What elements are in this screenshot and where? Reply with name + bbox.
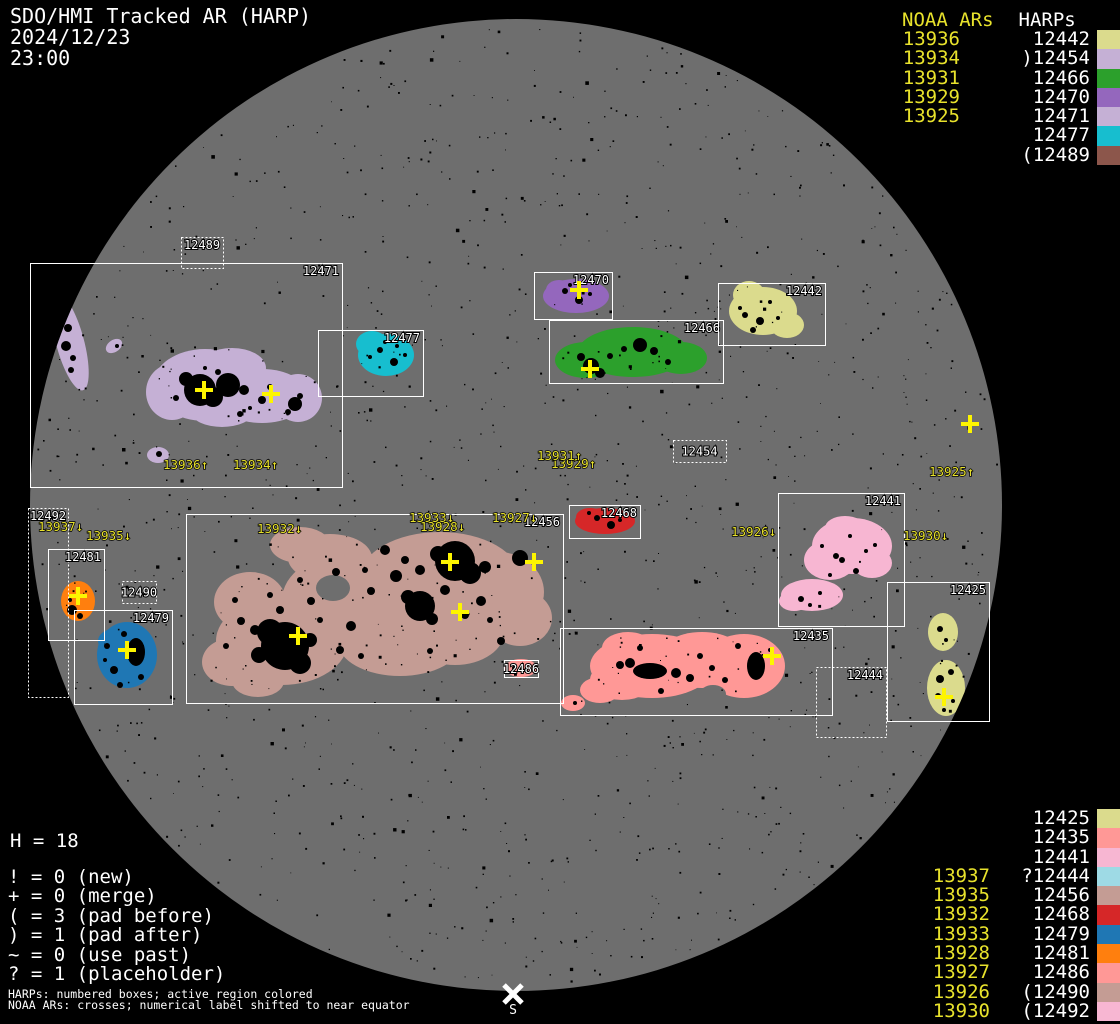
sunspot xyxy=(621,346,627,352)
harp-box-label: 12435 xyxy=(793,629,829,643)
sunspot xyxy=(380,545,390,555)
sunspot xyxy=(257,619,283,645)
sunspot xyxy=(479,561,491,573)
sunspot xyxy=(686,674,694,682)
flag-placeholder: ? = 1 (placeholder) xyxy=(8,965,225,984)
sunspot xyxy=(223,643,229,649)
sunspot xyxy=(828,573,832,577)
sunspot xyxy=(562,288,568,294)
legend-row: 13934)12454 xyxy=(890,49,1120,68)
harp-number: 12441 xyxy=(990,848,1090,867)
title-block: SDO/HMI Tracked AR (HARP)2024/12/2323:00 xyxy=(10,6,311,69)
sunspot xyxy=(616,661,624,669)
harp-number: (12489 xyxy=(960,146,1090,165)
harp-number: (12492 xyxy=(990,1002,1090,1021)
sunspot xyxy=(951,699,955,703)
noaa-ar-number xyxy=(890,848,990,867)
sunspot xyxy=(390,570,402,582)
sunspot xyxy=(430,546,446,562)
flag-legend: ! = 0 (new)+ = 0 (merge)( = 3 (pad befor… xyxy=(8,868,225,984)
sunspot xyxy=(237,617,245,625)
sunspot xyxy=(936,675,944,683)
sunspot xyxy=(64,324,72,332)
sunspot xyxy=(497,637,505,645)
sunspot xyxy=(248,406,252,410)
sunspot xyxy=(944,638,948,642)
sunspot xyxy=(808,603,812,607)
time-text: 23:00 xyxy=(10,48,311,69)
harp-box-label: 12441 xyxy=(865,494,901,508)
color-swatch xyxy=(1097,828,1120,847)
harp-number: 12435 xyxy=(990,828,1090,847)
harp-box-label: 12481 xyxy=(65,550,101,564)
sunspot xyxy=(232,597,238,603)
noaa-ar-number xyxy=(890,126,960,145)
sunspot xyxy=(203,366,207,370)
ar-label: 13926↓ xyxy=(731,524,776,539)
sunspot xyxy=(873,543,877,547)
sunspot xyxy=(750,327,756,333)
legend-row: 1393112466 xyxy=(890,69,1120,88)
sunspot xyxy=(346,621,356,631)
color-swatch xyxy=(1097,848,1120,867)
sunspot xyxy=(573,701,577,705)
sunspot xyxy=(415,565,425,575)
sunspot xyxy=(288,397,302,411)
harp-box-label: 12468 xyxy=(601,506,637,520)
sunspot xyxy=(68,367,74,373)
sunspot xyxy=(110,666,118,674)
sunspot xyxy=(697,653,703,659)
sunspot xyxy=(709,665,715,671)
ar-label: 13930↓ xyxy=(903,528,948,543)
sunspot xyxy=(258,396,266,404)
sunspot xyxy=(671,668,681,678)
legend-noaa-harp-top: NOAA ARsHARPs 139361244213934)1245413931… xyxy=(890,11,1120,165)
harp-box-label: 12471 xyxy=(303,264,339,278)
ar-label: 13932↓ xyxy=(257,521,302,536)
sunspot xyxy=(833,553,839,559)
sunspot xyxy=(156,451,162,457)
legend-row: 12435 xyxy=(890,828,1120,847)
sunspot xyxy=(367,587,375,595)
legend-row: (12489 xyxy=(890,146,1120,165)
legend-row: 13930(12492 xyxy=(890,1002,1120,1021)
sunspot xyxy=(377,347,383,353)
sunspot xyxy=(401,590,415,604)
sunspot xyxy=(297,577,303,583)
sunspot xyxy=(307,597,315,605)
sunspot xyxy=(117,682,123,688)
sunspot xyxy=(864,549,868,553)
color-swatch xyxy=(1097,963,1120,982)
sunspot xyxy=(390,358,398,366)
sunspot xyxy=(587,511,591,515)
noaa-ar-number: 13927 xyxy=(890,963,990,982)
sunspot xyxy=(216,373,240,397)
sunspot xyxy=(250,625,260,635)
color-swatch xyxy=(1097,867,1120,886)
noaa-ar-number: 13931 xyxy=(890,69,960,88)
sunspot xyxy=(607,521,615,529)
ar-label: 13937↓ xyxy=(38,519,83,534)
harp-box-label: 12486 xyxy=(503,662,539,676)
color-swatch xyxy=(1097,925,1120,944)
sunspot xyxy=(607,353,613,359)
legend-row: 1392712486 xyxy=(890,963,1120,982)
sunspot xyxy=(427,648,433,654)
legend-row: 1393212468 xyxy=(890,905,1120,924)
sunspot xyxy=(138,674,144,680)
color-swatch xyxy=(1097,983,1120,1002)
sunspot xyxy=(440,585,450,595)
sunspot xyxy=(476,596,486,606)
sunspot xyxy=(173,395,179,401)
harp-number: 12486 xyxy=(990,963,1090,982)
sunspot xyxy=(942,708,946,712)
ar-label: 13928↓ xyxy=(420,519,465,534)
screenshot-root: { "header": {"title": "SDO/HMI Tracked A… xyxy=(0,0,1120,1024)
sunspot xyxy=(239,385,249,395)
color-swatch xyxy=(1097,69,1120,88)
sunspot xyxy=(776,316,780,320)
legend-row: 12441 xyxy=(890,848,1120,867)
sunspot xyxy=(798,596,804,602)
harp-visualization: 1248912471124771247012466124421245412468… xyxy=(0,0,1120,1024)
date-text: 2024/12/23 xyxy=(10,27,311,48)
ar-label: 13934↑ xyxy=(233,457,278,472)
sunspot xyxy=(179,372,193,386)
sunspot xyxy=(121,631,127,637)
noaa-ar-number: 13925 xyxy=(890,107,960,126)
noaa-ar-number xyxy=(890,146,960,165)
color-swatch xyxy=(1097,146,1120,165)
harp-count-text: H = 18 xyxy=(10,830,79,852)
color-swatch xyxy=(1097,49,1120,68)
sunspot xyxy=(848,534,852,538)
sunspot xyxy=(61,341,71,351)
sunspot xyxy=(251,647,267,663)
sunspot xyxy=(853,568,859,574)
harp-box-label: 12466 xyxy=(684,321,720,335)
sunspot xyxy=(818,591,822,595)
flag-merge: + = 0 (merge) xyxy=(8,887,225,906)
noaa-ar-number: 13930 xyxy=(890,1002,990,1021)
sunspot xyxy=(368,355,372,359)
sunspot xyxy=(577,353,585,361)
noaa-ar-number: 13934 xyxy=(890,49,960,68)
legend-bottom-rows: 12425124351244113937?1244413935124561393… xyxy=(890,809,1120,1021)
harp-box-label: 12489 xyxy=(184,238,220,252)
sunspot xyxy=(115,344,119,348)
ar-label: 13936↑ xyxy=(163,457,208,472)
harp-number: 12466 xyxy=(960,69,1090,88)
legend-row: 12477 xyxy=(890,126,1120,145)
harp-box-label: 12442 xyxy=(786,284,822,298)
sunspot xyxy=(332,568,340,576)
sunspot xyxy=(267,592,273,598)
sunspot xyxy=(358,653,364,659)
sunspot xyxy=(948,669,954,675)
noaa-ar-number xyxy=(890,809,990,828)
sunspot xyxy=(276,606,284,614)
color-swatch xyxy=(1097,1002,1120,1021)
footnotes: HARPs: numbered boxes; active region col… xyxy=(8,989,410,1012)
south-pole-label: S xyxy=(509,1003,517,1018)
sunspot xyxy=(722,677,728,683)
harp-box-label: 12477 xyxy=(384,331,420,345)
ar-label: 13931↑ xyxy=(537,448,582,463)
color-swatch xyxy=(1097,107,1120,126)
noaa-ar-number: 13932 xyxy=(890,905,990,924)
sunspot xyxy=(61,313,67,319)
sunspot xyxy=(735,643,741,649)
sunspot xyxy=(665,359,671,365)
sunspot xyxy=(658,688,664,694)
footnote-noaa: NOAA ARs: crosses; numerical label shift… xyxy=(8,1000,410,1011)
sunspot xyxy=(426,613,438,625)
sunspot xyxy=(401,556,409,564)
flag-pad-after: ) = 1 (pad after) xyxy=(8,926,225,945)
color-swatch xyxy=(1097,126,1120,145)
color-swatch xyxy=(1097,886,1120,905)
harp-box-label: 12425 xyxy=(950,583,986,597)
sunspot xyxy=(756,317,764,325)
sunspot xyxy=(103,658,107,662)
sunspot xyxy=(588,292,592,296)
color-swatch xyxy=(1097,88,1120,107)
sunspot xyxy=(568,283,572,287)
harp-number: 12477 xyxy=(960,126,1090,145)
color-swatch xyxy=(1097,30,1120,49)
sunspot xyxy=(633,663,667,679)
harp-box-label: 12454 xyxy=(681,445,717,459)
sunspot xyxy=(747,652,765,680)
sunspot xyxy=(317,617,323,623)
color-swatch xyxy=(1097,809,1120,828)
legend-top-rows: 139361244213934)124541393112466139291247… xyxy=(890,30,1120,165)
sunspot xyxy=(742,312,748,318)
noaa-ar-number xyxy=(890,828,990,847)
sunspot xyxy=(650,347,658,355)
solar-disk xyxy=(30,19,1002,991)
sunspot xyxy=(215,369,221,375)
ar-label: 13925↑ xyxy=(929,464,974,479)
sunspot xyxy=(487,617,493,623)
page-title: SDO/HMI Tracked AR (HARP) xyxy=(10,6,311,27)
legend-noaa-harp-bottom: 12425124351244113937?1244413935124561393… xyxy=(890,809,1120,1021)
sunspot xyxy=(70,355,76,361)
sunspot xyxy=(459,562,481,584)
harp-box-label: 12490 xyxy=(121,586,157,600)
color-swatch xyxy=(1097,944,1120,963)
sunspot xyxy=(820,544,824,548)
sunspot xyxy=(768,300,772,304)
sunspot xyxy=(937,626,943,632)
sunspot xyxy=(336,646,344,654)
sunspot xyxy=(839,557,845,563)
sunspot xyxy=(289,652,311,674)
sunspot xyxy=(625,658,635,668)
ar-label: 13927↓ xyxy=(492,510,537,525)
sunspot xyxy=(403,353,407,357)
harp-box-label: 12479 xyxy=(133,611,169,625)
harp-number: )12454 xyxy=(960,49,1090,68)
sunspot xyxy=(77,613,83,619)
color-swatch xyxy=(1097,905,1120,924)
harp-box-12486: 12486 xyxy=(503,661,539,678)
harp-number: 12468 xyxy=(990,905,1090,924)
ar-label: 13935↓ xyxy=(86,528,131,543)
sunspot xyxy=(297,393,303,399)
sunspot xyxy=(594,515,600,521)
sunspot xyxy=(738,306,742,310)
harp-box-label: 12444 xyxy=(847,668,883,682)
sunspot xyxy=(633,338,647,352)
